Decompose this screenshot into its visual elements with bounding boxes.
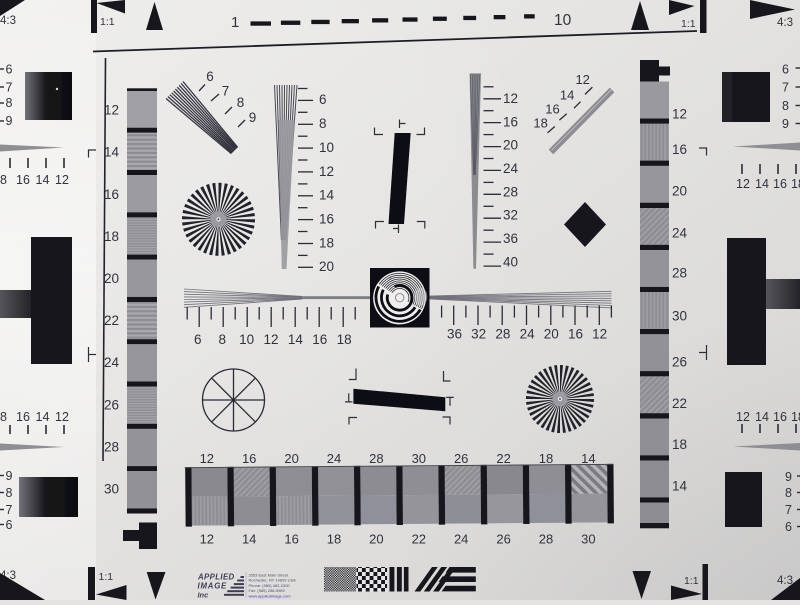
svg-text:16: 16 xyxy=(545,102,559,117)
svg-text:12: 12 xyxy=(200,532,214,547)
svg-text:7: 7 xyxy=(782,81,789,95)
svg-text:26: 26 xyxy=(496,532,510,547)
svg-text:20: 20 xyxy=(503,138,518,153)
svg-text:36: 36 xyxy=(447,327,462,342)
svg-text:22: 22 xyxy=(412,532,426,547)
svg-text:12: 12 xyxy=(263,332,278,347)
svg-text:26: 26 xyxy=(104,397,119,412)
svg-text:8: 8 xyxy=(218,332,226,347)
svg-text:12: 12 xyxy=(575,72,589,87)
svg-text:26: 26 xyxy=(672,355,687,370)
svg-text:14: 14 xyxy=(104,145,120,160)
svg-text:12: 12 xyxy=(503,91,518,106)
svg-text:30: 30 xyxy=(581,532,595,547)
svg-text:20: 20 xyxy=(544,327,559,342)
svg-text:14: 14 xyxy=(755,410,769,424)
svg-text:18: 18 xyxy=(319,235,334,250)
svg-text:22: 22 xyxy=(496,451,510,466)
svg-text:1:1: 1:1 xyxy=(681,18,696,30)
svg-text:12: 12 xyxy=(736,177,750,191)
svg-text:14: 14 xyxy=(242,532,256,547)
svg-text:26: 26 xyxy=(454,451,468,466)
svg-text:16: 16 xyxy=(773,177,787,191)
svg-text:APPLIED: APPLIED xyxy=(197,573,235,582)
svg-text:8: 8 xyxy=(785,486,792,500)
svg-text:24: 24 xyxy=(327,451,341,466)
svg-text:12: 12 xyxy=(200,451,214,466)
svg-text:18: 18 xyxy=(672,437,687,452)
svg-text:24: 24 xyxy=(104,355,120,370)
svg-text:6: 6 xyxy=(194,332,202,347)
svg-text:14: 14 xyxy=(319,188,335,203)
svg-text:16: 16 xyxy=(104,187,119,202)
svg-text:9: 9 xyxy=(785,470,792,484)
svg-text:1:1: 1:1 xyxy=(684,575,699,587)
svg-text:20: 20 xyxy=(104,271,119,286)
svg-text:9: 9 xyxy=(249,110,257,125)
svg-text:9: 9 xyxy=(6,114,13,128)
svg-text:16: 16 xyxy=(16,173,30,187)
svg-text:18: 18 xyxy=(539,451,553,466)
svg-text:14: 14 xyxy=(581,451,595,466)
svg-text:14: 14 xyxy=(560,88,574,103)
svg-text:14: 14 xyxy=(672,479,688,494)
svg-text:1:1: 1:1 xyxy=(99,571,114,583)
svg-text:22: 22 xyxy=(672,396,687,411)
svg-text:8: 8 xyxy=(0,410,7,424)
svg-text:9: 9 xyxy=(782,117,789,131)
svg-text:16: 16 xyxy=(672,142,687,157)
svg-text:32: 32 xyxy=(471,327,486,342)
svg-text:20: 20 xyxy=(672,184,687,199)
svg-text:1: 1 xyxy=(231,14,239,31)
svg-text:8: 8 xyxy=(6,486,13,500)
svg-text:12: 12 xyxy=(672,107,687,122)
svg-text:16: 16 xyxy=(16,410,30,424)
svg-text:12: 12 xyxy=(319,164,334,179)
svg-text:16: 16 xyxy=(568,327,583,342)
svg-text:7: 7 xyxy=(6,503,13,517)
svg-text:Inc: Inc xyxy=(198,591,209,600)
svg-text:7: 7 xyxy=(222,84,230,99)
svg-text:10: 10 xyxy=(239,332,254,347)
svg-text:28: 28 xyxy=(503,184,518,199)
svg-text:8: 8 xyxy=(319,116,327,131)
svg-text:28: 28 xyxy=(539,532,553,547)
svg-text:14: 14 xyxy=(288,332,304,347)
svg-text:12: 12 xyxy=(592,327,607,342)
svg-text:6: 6 xyxy=(206,69,214,84)
svg-text:40: 40 xyxy=(503,254,518,269)
svg-text:18: 18 xyxy=(337,332,352,347)
svg-text:6: 6 xyxy=(785,520,792,534)
svg-text:10: 10 xyxy=(554,12,572,29)
svg-text:16: 16 xyxy=(284,532,298,547)
svg-text:16: 16 xyxy=(319,211,334,226)
svg-text:28: 28 xyxy=(495,327,510,342)
svg-text:20: 20 xyxy=(284,451,298,466)
svg-text:8: 8 xyxy=(6,96,13,110)
svg-text:9: 9 xyxy=(6,469,13,483)
svg-text:22: 22 xyxy=(104,313,119,328)
svg-text:30: 30 xyxy=(412,451,426,466)
svg-text:14: 14 xyxy=(755,177,769,191)
svg-text:18: 18 xyxy=(104,229,119,244)
svg-text:6: 6 xyxy=(6,63,13,77)
svg-text:6: 6 xyxy=(319,92,327,107)
svg-text:24: 24 xyxy=(672,226,688,241)
svg-text:18: 18 xyxy=(533,116,547,131)
svg-text:18: 18 xyxy=(327,532,341,547)
svg-text:28: 28 xyxy=(104,439,119,454)
svg-text:16: 16 xyxy=(312,332,327,347)
svg-text:IMAGE: IMAGE xyxy=(198,582,228,591)
svg-text:24: 24 xyxy=(520,327,536,342)
svg-text:www.appliedimage.com: www.appliedimage.com xyxy=(249,593,292,598)
svg-text:32: 32 xyxy=(503,208,518,223)
svg-text:6: 6 xyxy=(6,518,13,532)
svg-text:4:3: 4:3 xyxy=(0,15,16,27)
svg-text:8: 8 xyxy=(237,95,245,110)
svg-text:12: 12 xyxy=(55,173,69,187)
svg-text:30: 30 xyxy=(672,309,687,324)
svg-text:14: 14 xyxy=(36,173,50,187)
svg-text:14: 14 xyxy=(36,410,50,424)
svg-text:12: 12 xyxy=(104,103,119,118)
svg-text:7: 7 xyxy=(6,81,13,95)
svg-text:8: 8 xyxy=(0,173,7,187)
svg-text:18: 18 xyxy=(791,410,800,424)
svg-text:24: 24 xyxy=(454,532,468,547)
svg-text:1:1: 1:1 xyxy=(100,16,115,28)
svg-text:4:3: 4:3 xyxy=(777,17,793,29)
svg-text:16: 16 xyxy=(242,451,256,466)
svg-text:12: 12 xyxy=(736,410,750,424)
svg-text:16: 16 xyxy=(773,410,787,424)
svg-text:18: 18 xyxy=(791,177,800,191)
svg-text:28: 28 xyxy=(672,266,687,281)
svg-text:10: 10 xyxy=(319,140,334,155)
svg-text:28: 28 xyxy=(369,451,383,466)
svg-text:12: 12 xyxy=(55,410,69,424)
svg-text:8: 8 xyxy=(782,99,789,113)
svg-text:20: 20 xyxy=(319,259,334,274)
svg-text:30: 30 xyxy=(104,482,119,497)
svg-text:7: 7 xyxy=(785,503,792,517)
svg-text:6: 6 xyxy=(782,63,789,77)
svg-text:36: 36 xyxy=(503,231,518,246)
svg-text:16: 16 xyxy=(503,114,518,129)
svg-text:24: 24 xyxy=(503,161,519,176)
svg-text:20: 20 xyxy=(369,532,383,547)
